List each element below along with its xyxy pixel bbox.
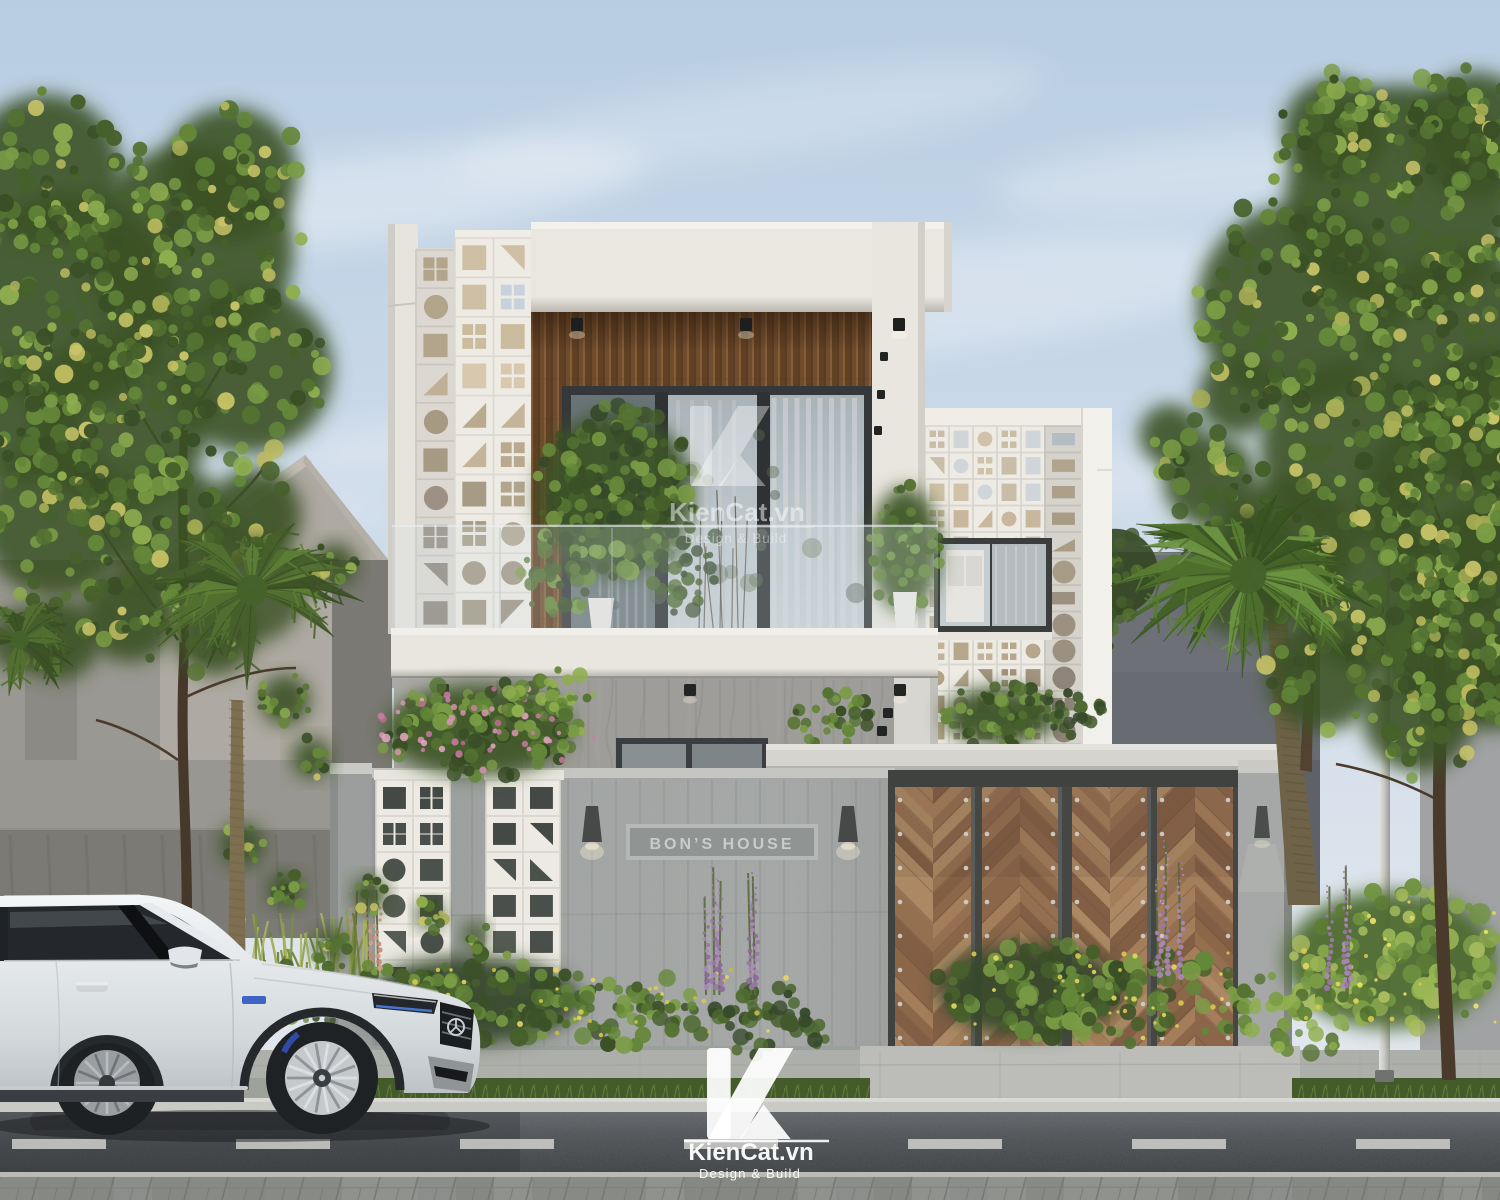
svg-text:BON’S HOUSE: BON’S HOUSE (649, 836, 794, 853)
svg-text:KienCat.vn: KienCat.vn (669, 497, 805, 527)
svg-text:Design & Build: Design & Build (685, 531, 788, 546)
svg-text:KienCat.vn: KienCat.vn (688, 1139, 813, 1166)
svg-text:Design & Build: Design & Build (699, 1166, 801, 1181)
